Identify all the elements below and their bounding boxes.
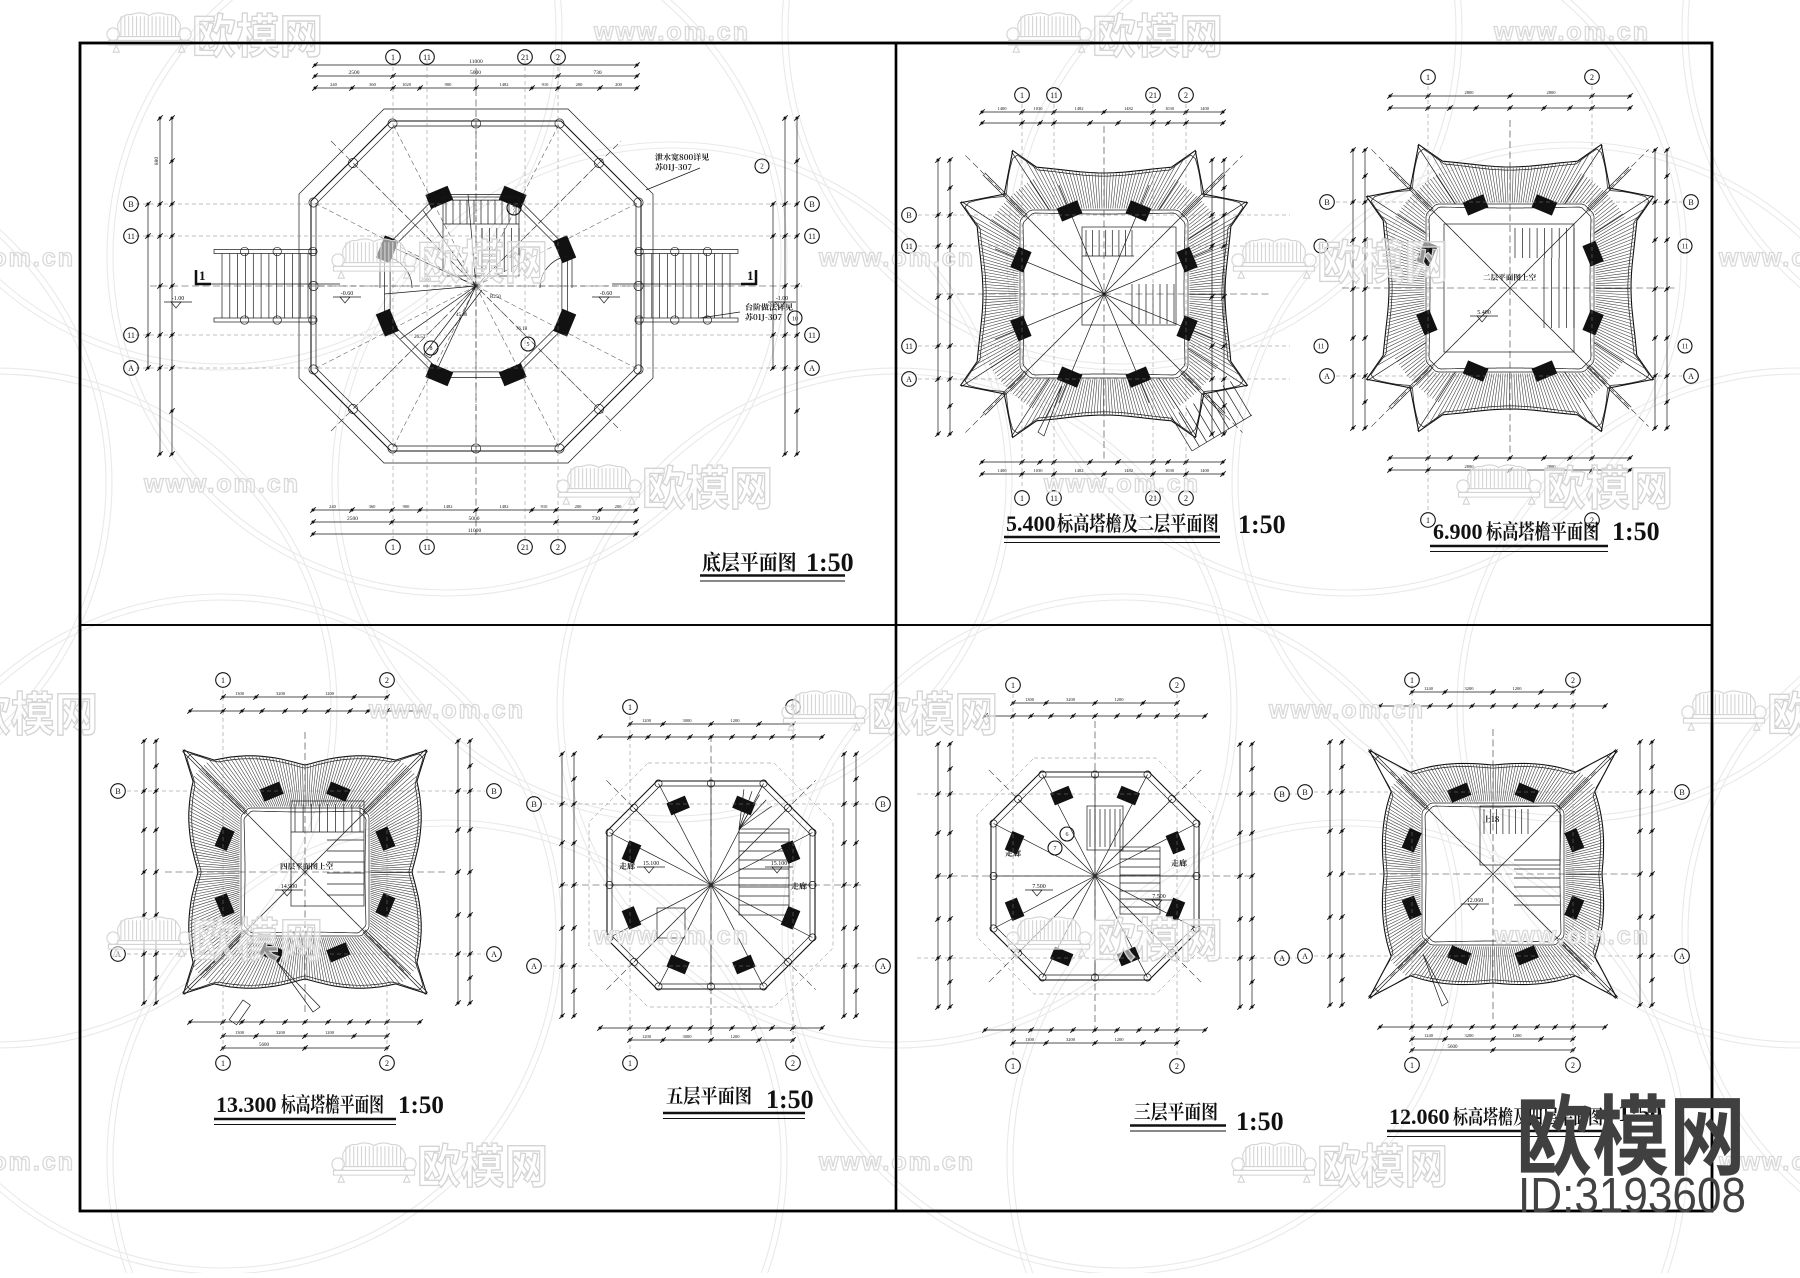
svg-text:B: B bbox=[1279, 790, 1284, 799]
svg-text:2: 2 bbox=[1175, 1062, 1179, 1071]
svg-text:2: 2 bbox=[1571, 1061, 1575, 1070]
svg-text:15.100: 15.100 bbox=[771, 861, 788, 867]
svg-text:2: 2 bbox=[556, 53, 560, 62]
svg-text:1: 1 bbox=[391, 543, 395, 552]
svg-text:2: 2 bbox=[1571, 676, 1575, 685]
svg-text:3200: 3200 bbox=[276, 1030, 286, 1035]
svg-text:3200: 3200 bbox=[1066, 697, 1076, 702]
svg-text:www.om.cn: www.om.cn bbox=[0, 1148, 75, 1176]
svg-text:11: 11 bbox=[423, 543, 431, 552]
svg-text:A: A bbox=[880, 962, 886, 971]
svg-text:2500: 2500 bbox=[349, 70, 360, 76]
svg-text:www.om.cn: www.om.cn bbox=[1718, 244, 1800, 272]
svg-text:-0.60: -0.60 bbox=[600, 291, 613, 297]
svg-text:360: 360 bbox=[369, 504, 377, 509]
svg-text:730: 730 bbox=[593, 70, 602, 76]
svg-text:B: B bbox=[906, 211, 911, 220]
svg-text:11: 11 bbox=[127, 331, 135, 340]
svg-text:www.om.cn: www.om.cn bbox=[368, 696, 525, 724]
svg-text:1400: 1400 bbox=[998, 468, 1008, 473]
svg-text:76.18: 76.18 bbox=[516, 327, 528, 332]
svg-text:1482: 1482 bbox=[500, 504, 509, 509]
svg-text:1: 1 bbox=[1426, 73, 1430, 82]
svg-text:5: 5 bbox=[527, 342, 530, 348]
svg-text:240: 240 bbox=[330, 82, 338, 87]
svg-text:5600: 5600 bbox=[259, 1043, 270, 1048]
svg-text:5000: 5000 bbox=[470, 70, 481, 76]
svg-text:1: 1 bbox=[221, 676, 225, 685]
svg-text:2: 2 bbox=[760, 162, 764, 170]
svg-text:A: A bbox=[809, 364, 815, 373]
svg-text:3200: 3200 bbox=[1465, 1033, 1475, 1038]
svg-text:2: 2 bbox=[1184, 91, 1188, 100]
svg-text:1: 1 bbox=[1410, 1061, 1414, 1070]
svg-text:3000: 3000 bbox=[683, 1034, 693, 1039]
svg-text:11: 11 bbox=[905, 342, 913, 351]
svg-text:2500: 2500 bbox=[347, 516, 358, 522]
svg-text:1482: 1482 bbox=[444, 504, 453, 509]
svg-text:1:50: 1:50 bbox=[1238, 510, 1286, 539]
svg-text:200: 200 bbox=[575, 504, 583, 509]
svg-text:1240: 1240 bbox=[1424, 1033, 1434, 1038]
svg-text:B: B bbox=[531, 800, 536, 809]
svg-text:7: 7 bbox=[1054, 846, 1057, 852]
svg-text:1200: 1200 bbox=[1115, 1037, 1125, 1042]
svg-text:11000: 11000 bbox=[469, 59, 483, 65]
svg-text:1: 1 bbox=[1020, 494, 1024, 503]
svg-text:1482: 1482 bbox=[500, 82, 509, 87]
svg-text:7.500: 7.500 bbox=[1152, 894, 1166, 900]
svg-text:1200: 1200 bbox=[642, 718, 652, 723]
svg-text:200: 200 bbox=[576, 82, 584, 87]
svg-text:1: 1 bbox=[221, 1059, 225, 1068]
svg-text:1300: 1300 bbox=[1025, 697, 1035, 702]
svg-text:11000: 11000 bbox=[468, 528, 482, 534]
svg-text:3200: 3200 bbox=[276, 691, 286, 696]
svg-text:www.om.cn: www.om.cn bbox=[0, 244, 75, 272]
svg-text:B: B bbox=[1324, 198, 1329, 207]
svg-text:7.500: 7.500 bbox=[1032, 884, 1046, 890]
svg-text:A: A bbox=[531, 962, 537, 971]
svg-text:3200: 3200 bbox=[1066, 1037, 1076, 1042]
svg-text:B: B bbox=[491, 787, 496, 796]
svg-text:3200: 3200 bbox=[1465, 686, 1475, 691]
svg-text:14.900: 14.900 bbox=[281, 884, 298, 890]
svg-text:A: A bbox=[128, 364, 134, 373]
svg-text:240: 240 bbox=[329, 504, 337, 509]
svg-text:8: 8 bbox=[430, 346, 433, 352]
svg-text:1: 1 bbox=[628, 1059, 632, 1068]
svg-text:1030: 1030 bbox=[1034, 106, 1044, 111]
svg-text:45.00: 45.00 bbox=[456, 313, 468, 318]
svg-text:1: 1 bbox=[391, 53, 395, 62]
svg-text:1200: 1200 bbox=[1513, 686, 1523, 691]
svg-text:1: 1 bbox=[1020, 91, 1024, 100]
svg-text:B: B bbox=[128, 200, 133, 209]
svg-text:1200: 1200 bbox=[325, 1030, 335, 1035]
svg-text:1: 1 bbox=[1011, 681, 1015, 690]
svg-text:1300: 1300 bbox=[235, 1030, 245, 1035]
svg-text:1240: 1240 bbox=[1424, 686, 1434, 691]
svg-text:15.100: 15.100 bbox=[643, 861, 660, 867]
svg-text:B: B bbox=[115, 787, 120, 796]
svg-text:11: 11 bbox=[1682, 342, 1689, 350]
svg-text:880: 880 bbox=[154, 157, 160, 166]
svg-text:2: 2 bbox=[1590, 516, 1594, 525]
svg-text:11: 11 bbox=[423, 53, 431, 62]
svg-text:1200: 1200 bbox=[731, 1034, 741, 1039]
svg-text:1400: 1400 bbox=[1200, 468, 1210, 473]
svg-text:1300: 1300 bbox=[235, 691, 245, 696]
svg-text:11: 11 bbox=[808, 331, 816, 340]
svg-text:1:50: 1:50 bbox=[1612, 517, 1660, 546]
svg-text:B: B bbox=[1679, 788, 1684, 797]
svg-text:910: 910 bbox=[542, 82, 550, 87]
svg-text:11: 11 bbox=[1318, 342, 1325, 350]
svg-text:1482: 1482 bbox=[1124, 106, 1133, 111]
svg-text:B: B bbox=[880, 800, 885, 809]
svg-text:5600: 5600 bbox=[1448, 1045, 1459, 1050]
svg-text:A: A bbox=[1302, 952, 1308, 961]
svg-text:1: 1 bbox=[747, 268, 754, 283]
svg-text:A: A bbox=[1324, 372, 1330, 381]
svg-text:2: 2 bbox=[385, 1059, 389, 1068]
svg-text:A: A bbox=[491, 950, 497, 959]
svg-text:360: 360 bbox=[369, 82, 377, 87]
svg-text:21: 21 bbox=[521, 543, 529, 552]
svg-text:1:50: 1:50 bbox=[766, 1085, 814, 1114]
svg-text:2: 2 bbox=[556, 543, 560, 552]
svg-text:900: 900 bbox=[403, 504, 411, 509]
svg-text:1: 1 bbox=[199, 268, 206, 283]
svg-text:A: A bbox=[1688, 372, 1694, 381]
svg-text:13.300: 13.300 bbox=[216, 1092, 277, 1117]
svg-text:1: 1 bbox=[1410, 676, 1414, 685]
svg-text:1: 1 bbox=[1426, 516, 1430, 525]
svg-text:1200: 1200 bbox=[731, 718, 741, 723]
svg-text:www.om.cn: www.om.cn bbox=[1493, 922, 1650, 950]
svg-text:www.om.cn: www.om.cn bbox=[593, 922, 750, 950]
svg-text:R250: R250 bbox=[490, 295, 501, 300]
svg-text:910: 910 bbox=[541, 504, 549, 509]
svg-text:A: A bbox=[906, 375, 912, 384]
svg-text:ID:3193608: ID:3193608 bbox=[1518, 1169, 1746, 1223]
svg-text:900: 900 bbox=[445, 82, 453, 87]
svg-text:12.060: 12.060 bbox=[1389, 1104, 1450, 1129]
svg-text:1200: 1200 bbox=[325, 691, 335, 696]
svg-text:-1.00: -1.00 bbox=[776, 296, 789, 302]
svg-text:730: 730 bbox=[592, 516, 601, 522]
svg-text:1400: 1400 bbox=[998, 106, 1008, 111]
svg-text:1: 1 bbox=[1011, 1062, 1015, 1071]
svg-text:5.400: 5.400 bbox=[1477, 310, 1491, 316]
svg-text:6: 6 bbox=[1066, 832, 1069, 838]
svg-text:2800: 2800 bbox=[1465, 90, 1475, 95]
svg-text:200: 200 bbox=[615, 82, 623, 87]
svg-text:2: 2 bbox=[791, 1059, 795, 1068]
svg-text:26.57: 26.57 bbox=[414, 335, 426, 340]
svg-text:B: B bbox=[809, 200, 814, 209]
svg-text:A: A bbox=[1679, 952, 1685, 961]
svg-text:12.060: 12.060 bbox=[1467, 898, 1484, 904]
svg-text:6.900: 6.900 bbox=[1433, 519, 1483, 544]
svg-text:1200: 1200 bbox=[642, 1034, 652, 1039]
svg-text:www.om.cn: www.om.cn bbox=[143, 470, 300, 498]
svg-text:B: B bbox=[1688, 198, 1693, 207]
svg-text:2: 2 bbox=[1175, 681, 1179, 690]
svg-text:1200: 1200 bbox=[1115, 697, 1125, 702]
svg-text:www.om.cn: www.om.cn bbox=[1043, 470, 1200, 498]
svg-text:3000: 3000 bbox=[683, 718, 693, 723]
svg-text:7: 7 bbox=[513, 206, 516, 212]
svg-text:1: 1 bbox=[628, 703, 632, 712]
svg-text:A: A bbox=[1279, 954, 1285, 963]
svg-text:1200: 1200 bbox=[1513, 1033, 1523, 1038]
svg-text:1030: 1030 bbox=[1034, 468, 1044, 473]
svg-text:5000: 5000 bbox=[469, 516, 480, 522]
svg-text:2: 2 bbox=[1590, 73, 1594, 82]
svg-text:1030: 1030 bbox=[1165, 106, 1175, 111]
svg-text:1020: 1020 bbox=[402, 82, 412, 87]
svg-text:1482: 1482 bbox=[1075, 106, 1084, 111]
svg-text:2800: 2800 bbox=[1547, 90, 1557, 95]
svg-text:1:50: 1:50 bbox=[806, 548, 854, 577]
svg-text:-1.00: -1.00 bbox=[172, 296, 185, 302]
svg-text:B: B bbox=[1302, 788, 1307, 797]
svg-text:21: 21 bbox=[521, 53, 529, 62]
svg-text:1400: 1400 bbox=[1200, 106, 1210, 111]
svg-text:2: 2 bbox=[385, 676, 389, 685]
svg-text:1:50: 1:50 bbox=[1236, 1107, 1284, 1136]
svg-text:1300: 1300 bbox=[1025, 1037, 1035, 1042]
svg-text:21: 21 bbox=[1149, 91, 1157, 100]
svg-text:11: 11 bbox=[1682, 242, 1689, 250]
svg-text:1:50: 1:50 bbox=[398, 1092, 444, 1119]
svg-text:10: 10 bbox=[792, 316, 798, 322]
svg-text:11: 11 bbox=[127, 232, 135, 241]
svg-text:11: 11 bbox=[808, 232, 816, 241]
svg-text:-0.60: -0.60 bbox=[341, 291, 354, 297]
svg-text:5.400: 5.400 bbox=[1006, 511, 1056, 536]
svg-text:11: 11 bbox=[1050, 91, 1058, 100]
svg-text:200: 200 bbox=[615, 504, 623, 509]
svg-text:www.om.cn: www.om.cn bbox=[1268, 696, 1425, 724]
